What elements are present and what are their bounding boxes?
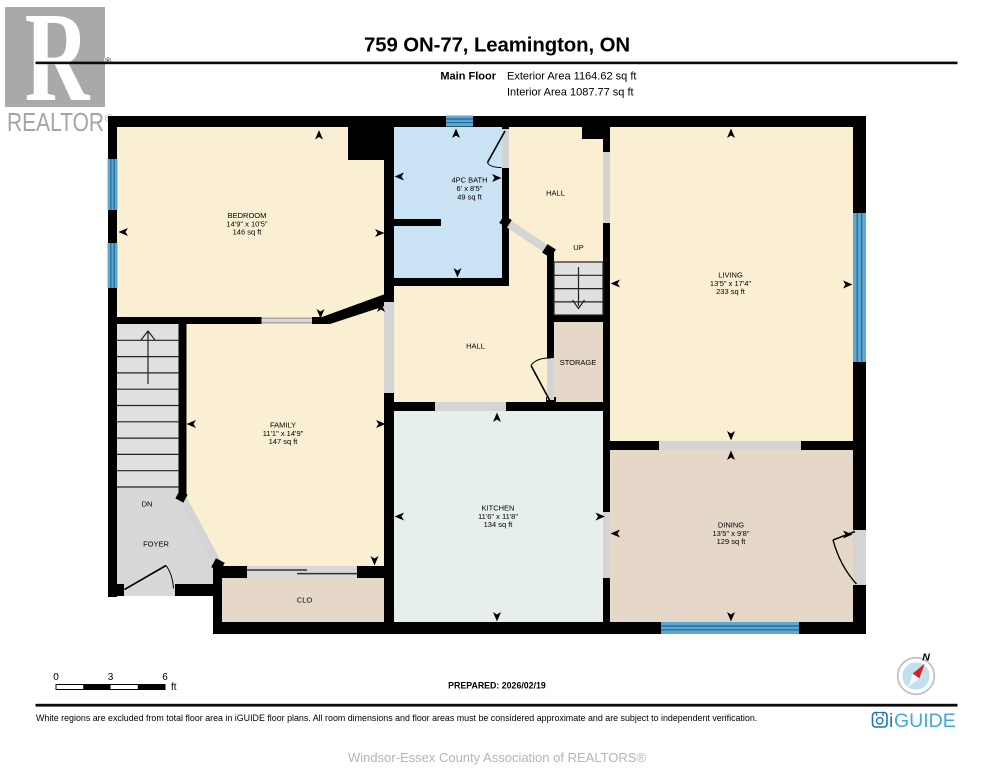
svg-text:147 sq ft: 147 sq ft [269, 437, 299, 446]
svg-text:759 ON-77, Leamington, ON: 759 ON-77, Leamington, ON [364, 35, 630, 57]
svg-text:®: ® [105, 56, 112, 66]
svg-text:Windsor-Essex County Associati: Windsor-Essex County Association of REAL… [348, 750, 647, 765]
svg-text:CLO: CLO [297, 596, 313, 605]
svg-text:DN: DN [142, 500, 153, 509]
svg-text:6: 6 [162, 672, 168, 683]
svg-text:HALL: HALL [546, 189, 565, 198]
svg-text:White regions are excluded fro: White regions are excluded from total fl… [36, 713, 757, 723]
svg-text:146 sq ft: 146 sq ft [233, 228, 263, 237]
svg-text:FOYER: FOYER [143, 540, 169, 549]
svg-text:Interior Area 1087.77 sq ft: Interior Area 1087.77 sq ft [507, 87, 634, 99]
svg-text:UP: UP [573, 243, 583, 252]
svg-text:233 sq ft: 233 sq ft [716, 287, 746, 296]
svg-text:ft: ft [171, 682, 177, 693]
svg-text:HALL: HALL [466, 342, 485, 351]
svg-text:49 sq ft: 49 sq ft [457, 192, 483, 201]
svg-text:3: 3 [108, 672, 114, 683]
svg-text:N: N [922, 652, 930, 664]
svg-text:STORAGE: STORAGE [560, 358, 597, 367]
svg-text:GUIDE: GUIDE [894, 710, 956, 732]
svg-text:129 sq ft: 129 sq ft [717, 537, 747, 546]
svg-text:0: 0 [53, 672, 59, 683]
svg-text:134 sq ft: 134 sq ft [484, 520, 514, 529]
svg-text:i: i [889, 710, 893, 732]
svg-text:Exterior Area 1164.62 sq ft: Exterior Area 1164.62 sq ft [507, 71, 636, 83]
svg-text:Main Floor: Main Floor [440, 71, 496, 83]
svg-text:PREPARED: 2026/02/19: PREPARED: 2026/02/19 [448, 681, 546, 691]
svg-text:REALTOR: REALTOR [7, 107, 104, 137]
